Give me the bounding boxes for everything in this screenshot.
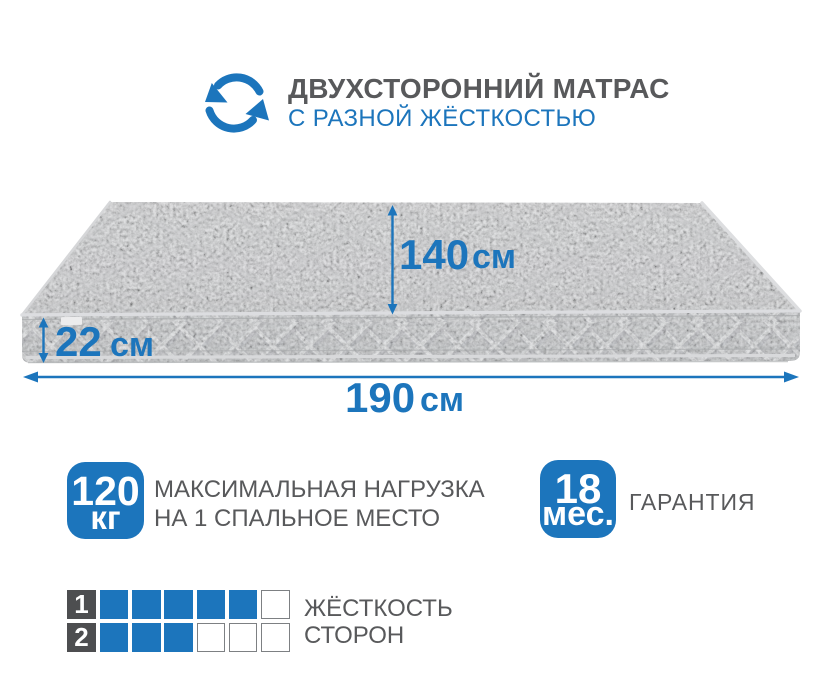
svg-text:см: см bbox=[420, 381, 464, 419]
svg-text:см: см bbox=[472, 238, 516, 276]
svg-text:22: 22 bbox=[55, 318, 102, 365]
svg-text:см: см bbox=[110, 326, 154, 364]
svg-text:190: 190 bbox=[345, 374, 415, 421]
svg-text:140: 140 bbox=[399, 231, 469, 278]
